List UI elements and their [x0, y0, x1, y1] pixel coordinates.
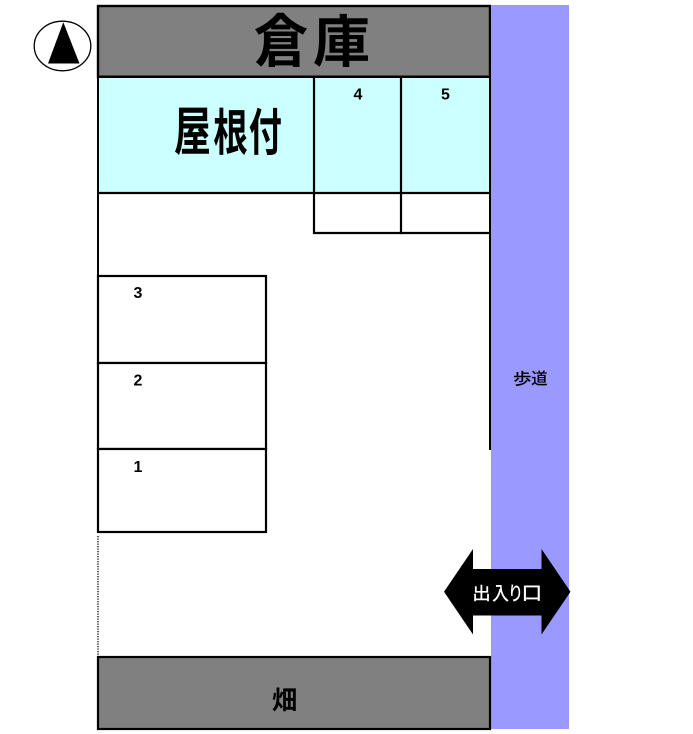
svg-text:3: 3: [134, 285, 143, 302]
svg-text:1: 1: [134, 459, 143, 476]
svg-text:5: 5: [441, 86, 450, 103]
svg-text:2: 2: [134, 372, 143, 389]
svg-text:4: 4: [354, 86, 363, 103]
